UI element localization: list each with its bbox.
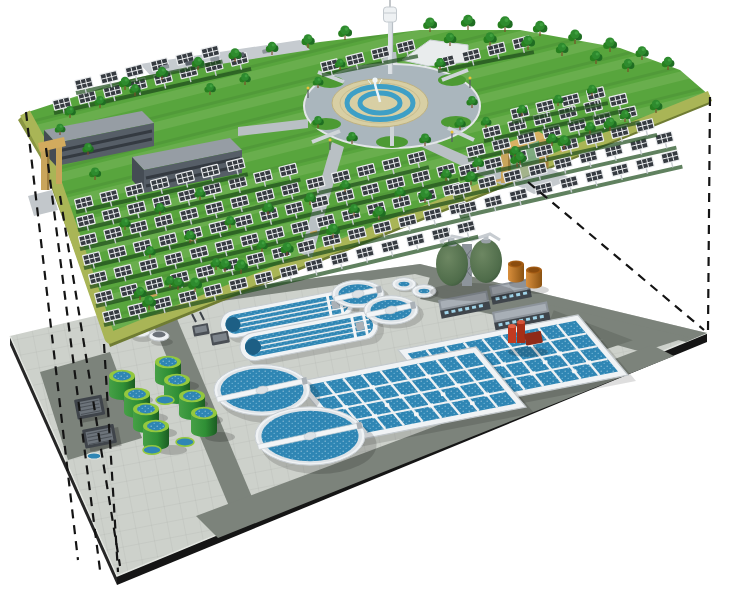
cutaway-scene-illustration [0, 0, 740, 589]
tower-shaft [388, 20, 393, 74]
projection-line-right-vertical [708, 97, 710, 331]
ground-basin-pad [143, 446, 161, 454]
fuel-tank [526, 266, 549, 294]
fountain-plaza [304, 64, 480, 148]
tree [338, 25, 352, 40]
inlet-pad [87, 453, 101, 459]
tree [423, 17, 437, 32]
tower-cap [384, 7, 397, 22]
tree [461, 15, 475, 30]
digester-egg [436, 242, 468, 286]
tree [498, 16, 513, 32]
digester-egg [470, 239, 502, 283]
illustration-stage [0, 0, 740, 589]
ground-basin-pad [176, 438, 194, 446]
ground-basin-pad [156, 396, 174, 404]
